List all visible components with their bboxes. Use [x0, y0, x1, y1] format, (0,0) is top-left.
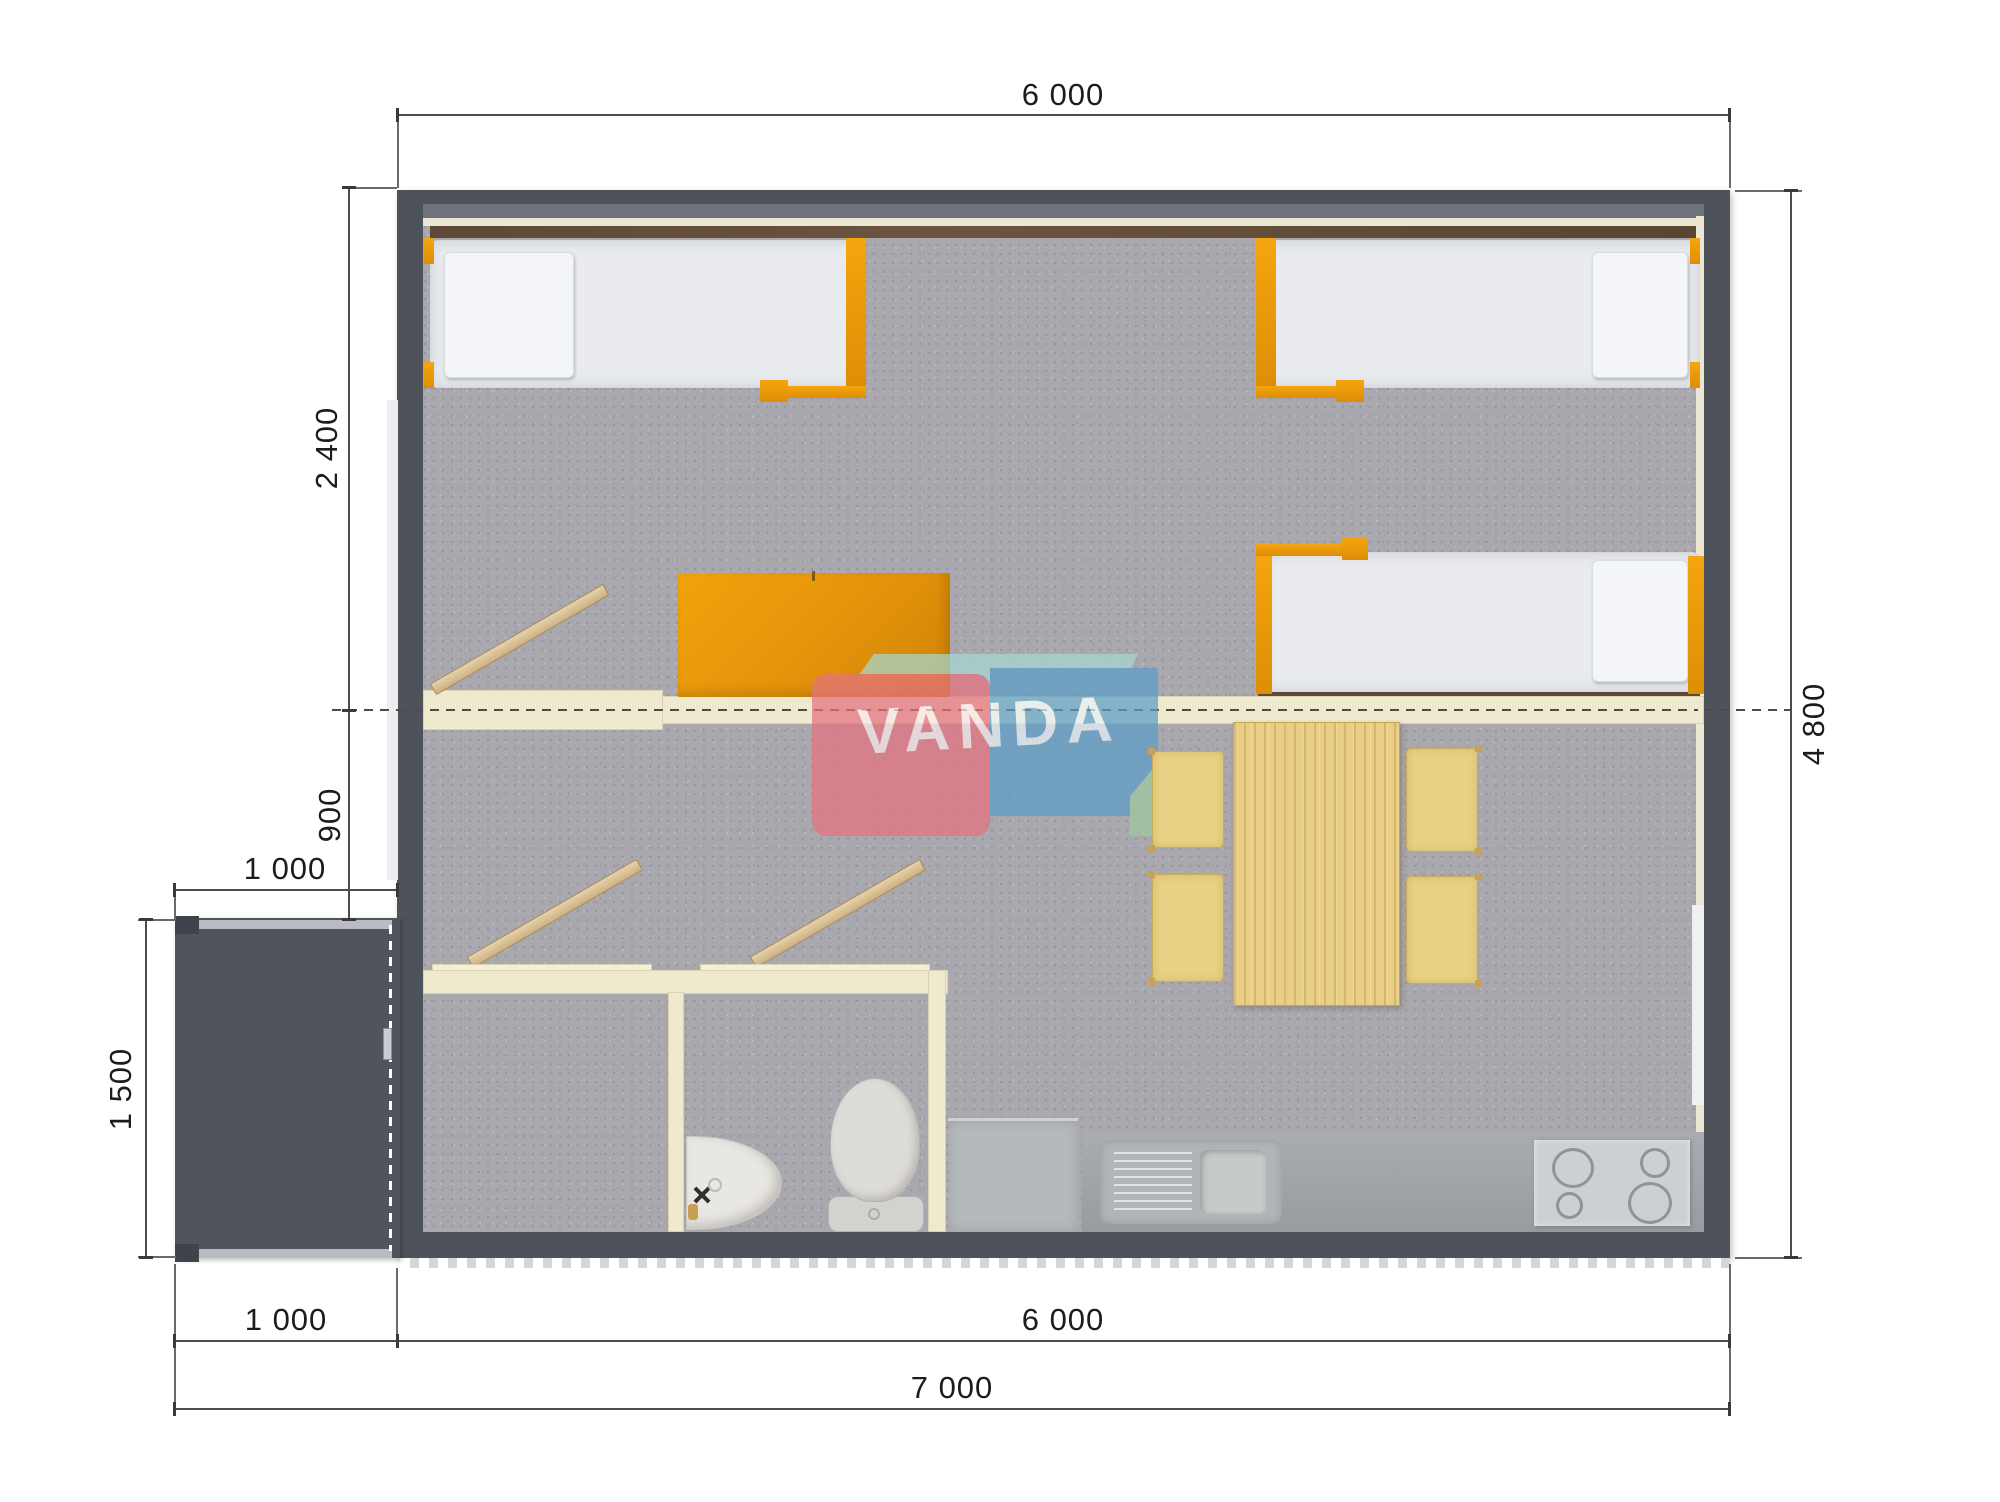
dim-label-bottom-total: 7 000 — [911, 1370, 994, 1406]
dim-tick — [1728, 108, 1731, 122]
dim-label-top-width: 6 000 — [1022, 77, 1105, 113]
stove-burner-large-br — [1628, 1182, 1672, 1224]
porch-deck — [175, 918, 400, 1258]
bed-top-right-frame-corner-top — [1690, 238, 1700, 264]
dimension-line-right — [1790, 190, 1792, 1258]
dim-label-bottom-main: 6 000 — [1022, 1302, 1105, 1338]
bed-top-left-frame-right-bar — [846, 238, 866, 390]
chair-leg-nub — [1475, 745, 1482, 752]
floor-plan-canvas: VANDA — [0, 0, 2000, 1502]
dining-table — [1233, 722, 1400, 1006]
toilet-lid — [830, 1078, 920, 1202]
dim-label-porch-width: 1 000 — [244, 851, 327, 887]
vanda-watermark: VANDA — [808, 648, 1170, 836]
top-wall-inner-ledge — [423, 204, 1704, 218]
porch-top-strip — [180, 920, 392, 929]
dim-tick — [1728, 1334, 1731, 1348]
dimension-line-left — [348, 187, 350, 920]
bed-top-left-pillow — [444, 252, 574, 378]
chair-leg-nub — [1475, 873, 1482, 880]
dim-label-porch-height: 1 500 — [103, 1048, 139, 1131]
chair-leg-nub — [1475, 848, 1482, 855]
dim-tick — [1784, 189, 1798, 192]
dim-tick — [342, 186, 356, 189]
porch-bottom-strip — [180, 1249, 392, 1258]
porch-corner-post-top — [175, 916, 199, 934]
bed-mid-right-frame-right-bar — [1688, 556, 1704, 694]
dim-label-right-height: 4 800 — [1796, 683, 1832, 766]
sink-basin — [1200, 1150, 1266, 1214]
shower-unit — [948, 1118, 1078, 1232]
bed-top-right-frame-left-bar — [1256, 238, 1276, 390]
dim-tick — [139, 918, 153, 921]
stove-burner-large-tl — [1552, 1148, 1594, 1188]
desk-top-notch — [812, 571, 815, 581]
dimension-line-porch-height — [145, 919, 147, 1258]
bathroom-top-wall — [423, 970, 948, 994]
partition-dash-ext-right — [1704, 709, 1790, 711]
dim-tick — [396, 883, 399, 897]
left-wall-window — [387, 400, 398, 880]
bed-mid-right-pillow — [1592, 560, 1688, 682]
dim-label-left-upper: 2 400 — [309, 407, 345, 490]
dimension-line-bottom-1 — [174, 1340, 1731, 1342]
dim-label-bottom-porch: 1 000 — [245, 1302, 328, 1338]
bed-mid-right-frame-left-bar — [1256, 552, 1272, 694]
dim-tick — [139, 1256, 153, 1259]
chair-right-top — [1406, 748, 1478, 852]
bottom-wall-dashed-edging — [400, 1258, 1730, 1268]
headboard-shelf-strip — [430, 226, 1696, 238]
chair-leg-nub — [1148, 871, 1155, 878]
dim-tick — [1728, 1402, 1731, 1416]
chair-leg-nub — [1148, 748, 1155, 755]
chair-leg-nub — [1148, 978, 1155, 985]
chair-leg-nub — [1475, 980, 1482, 987]
entrance-door-handle — [383, 1028, 392, 1060]
bed-top-right-pillow — [1592, 252, 1688, 378]
chair-left-bottom — [1152, 874, 1224, 982]
top-wall-cream-liner — [423, 218, 1704, 226]
porch-corner-post-bottom — [175, 1244, 199, 1262]
dim-tick — [342, 918, 356, 921]
sink-drainboard-ridges — [1114, 1152, 1192, 1214]
chair-leg-nub — [1148, 845, 1155, 852]
dimension-line-bottom-2 — [174, 1408, 1731, 1410]
right-wall-window — [1692, 905, 1704, 1105]
dim-tick — [173, 883, 176, 897]
bathroom-right-wall — [928, 970, 946, 1232]
bed-top-left-frame-bracket — [760, 380, 788, 402]
washbasin-drain-circle — [708, 1178, 722, 1192]
chair-left-top — [1152, 751, 1224, 848]
dimension-line-porch-width — [174, 889, 398, 891]
toilet-flush-button — [868, 1208, 880, 1220]
dim-tick — [173, 1334, 176, 1348]
stove-burner-small-bl — [1556, 1192, 1583, 1219]
soap-bottle — [688, 1204, 698, 1220]
stove-burner-small-tr — [1640, 1148, 1670, 1178]
dim-tick — [342, 709, 356, 712]
entrance-door-dashed-line — [389, 925, 392, 1251]
bed-top-right-frame-corner-bottom — [1690, 362, 1700, 388]
bed-top-left-frame-corner-bottom — [424, 362, 434, 388]
dim-label-left-mid: 900 — [312, 788, 348, 843]
bed-top-right-frame-bracket — [1336, 380, 1364, 402]
dim-tick — [396, 1334, 399, 1348]
dim-tick — [173, 1402, 176, 1416]
bed-mid-right-frame-bracket — [1342, 538, 1368, 560]
dim-tick — [1784, 1256, 1798, 1259]
dimension-line-top — [397, 114, 1731, 116]
bed-top-left-frame-corner-top — [424, 238, 434, 264]
logo-text: VANDA — [856, 682, 1122, 768]
bathroom-divider-wall — [668, 992, 684, 1232]
chair-right-bottom — [1406, 876, 1478, 984]
dim-tick — [396, 108, 399, 122]
